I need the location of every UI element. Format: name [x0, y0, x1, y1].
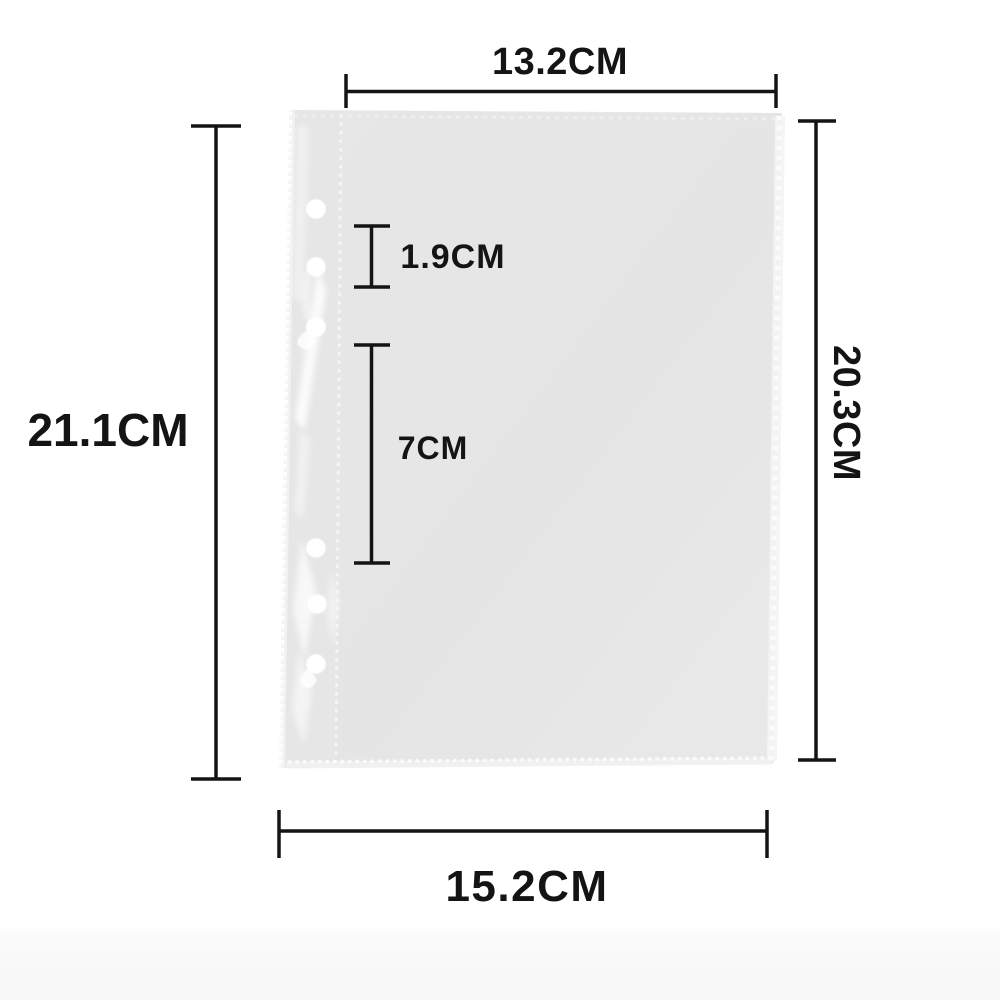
svg-text:15.2CM: 15.2CM [445, 862, 608, 911]
svg-text:13.2CM: 13.2CM [492, 41, 628, 83]
svg-text:7CM: 7CM [398, 430, 469, 466]
svg-text:21.1CM: 21.1CM [27, 404, 188, 456]
svg-text:1.9CM: 1.9CM [400, 238, 505, 276]
svg-text:20.3CM: 20.3CM [825, 345, 867, 481]
